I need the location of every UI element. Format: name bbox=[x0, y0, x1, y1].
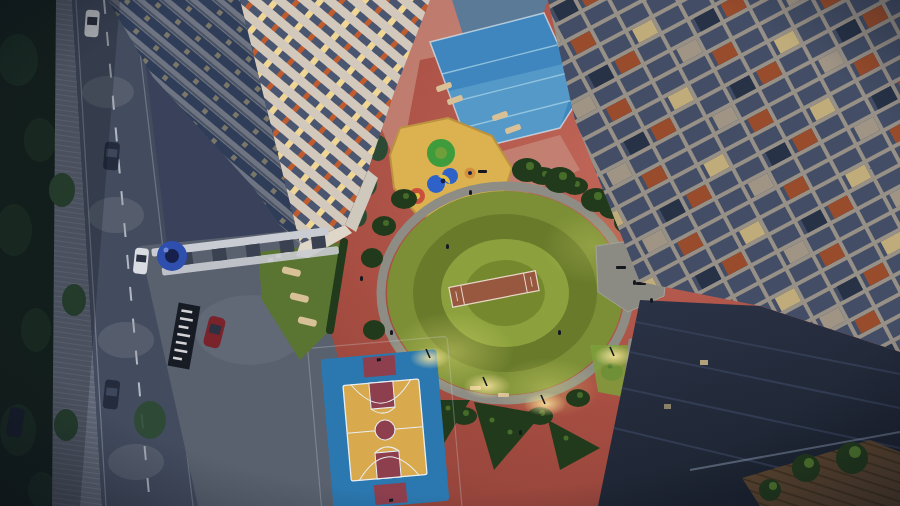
aerial-render bbox=[0, 0, 900, 506]
scene-svg bbox=[0, 0, 900, 506]
vignette bbox=[0, 0, 900, 506]
